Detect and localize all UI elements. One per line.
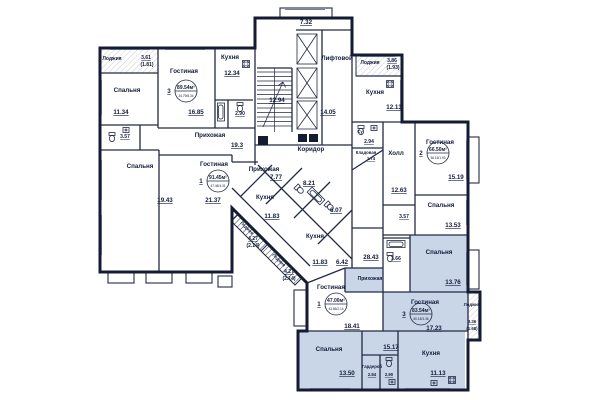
apartment-subarea: 36.15/1.93 <box>430 156 445 160</box>
area-label: 3.57 <box>399 214 409 220</box>
area-label: 12.13 <box>386 104 402 111</box>
room-label: Гостиная <box>317 284 345 291</box>
apartment-area: 89.54м² <box>177 85 195 91</box>
area-label: 7.77 <box>270 174 283 181</box>
apartment-subarea: 43.56/2.14 <box>328 307 343 311</box>
area-label: 4.27 <box>284 269 294 275</box>
area-label: 7.32 <box>300 19 313 26</box>
area-label: 12.34 <box>224 70 240 77</box>
room-label: (2.14) <box>246 243 259 249</box>
room-label: Прихожая <box>249 166 280 173</box>
room-label: Коридор <box>298 146 325 153</box>
room-label: Прихожая <box>195 132 226 139</box>
room-label: Спальня <box>127 163 154 170</box>
elevator-shafts <box>258 34 318 145</box>
area-label: 11.83 <box>264 213 280 220</box>
area-label: 2.84 <box>368 372 377 377</box>
room-label: Гостиная <box>170 68 198 75</box>
area-label: 12.94 <box>269 97 285 104</box>
room-label: Спальня <box>426 249 453 256</box>
floor-plan-canvas: Лоджия3.61(1.81)Спальня11.343.57Гостиная… <box>0 0 600 400</box>
area-label: 6.07 <box>330 207 343 214</box>
apartment-area: 66.50м² <box>429 147 447 153</box>
room-label: Прихожая <box>358 276 383 282</box>
apartment-stamp: 389.54м²34.79/8.34 <box>167 80 197 102</box>
area-label: 8.21 <box>303 180 316 187</box>
apartment-number: 2 <box>419 150 423 157</box>
area-label: 28.43 <box>363 254 379 261</box>
room-label: Лифтовой <box>321 55 353 62</box>
area-label: 3.61 <box>141 55 151 61</box>
floor-plan: Лоджия3.61(1.81)Спальня11.343.57Гостиная… <box>0 0 600 400</box>
room-label: Кухня <box>221 54 239 61</box>
room-label: Лоджия <box>464 302 481 307</box>
room-label: (1.68) <box>466 326 478 331</box>
area-label: 11.34 <box>113 109 129 116</box>
room-label: Гостиная <box>200 161 228 168</box>
apartment-number: 3 <box>402 311 406 318</box>
area-label: 19.43 <box>157 197 173 204</box>
area-label: 11.13 <box>430 370 446 377</box>
area-label: 11.83 <box>312 259 328 266</box>
stove-icon <box>387 81 394 88</box>
room-label: Кухня <box>306 233 324 240</box>
apartment-subarea: 34.79/8.34 <box>178 94 193 98</box>
tub-icon <box>387 241 405 248</box>
area-label: 18.41 <box>344 323 360 330</box>
area-label: 1.74 <box>367 156 376 161</box>
area-label: 3.66 <box>391 256 401 262</box>
apartment-area: 47.00м² <box>327 298 345 304</box>
area-label: 13.76 <box>445 279 461 286</box>
area-label: 3.57 <box>120 134 130 140</box>
apartment-subarea: 80.18/3.36 <box>413 317 428 321</box>
area-label: 3.86 <box>387 58 397 64</box>
area-label: 15.17 <box>383 344 399 351</box>
room-label: Гардероб <box>362 364 383 369</box>
area-label: 2.90 <box>385 372 394 377</box>
area-label: 17.23 <box>426 325 442 332</box>
room-label: Спальня <box>114 87 141 94</box>
area-label: 2.94 <box>364 139 374 145</box>
area-label: 13.53 <box>445 222 461 229</box>
tub-icon <box>218 103 225 121</box>
area-label: 4.27 <box>248 236 258 242</box>
apartment-number: 3 <box>167 88 171 95</box>
area-label: 16.85 <box>188 109 204 116</box>
area-label: 21.37 <box>205 197 221 204</box>
room-label: (1.93) <box>386 65 399 71</box>
area-label: 13.50 <box>339 370 355 377</box>
room-label: Холл <box>388 150 404 157</box>
room-label: Спальня <box>316 346 343 353</box>
apartment-area: 91.45м² <box>209 175 227 181</box>
sink-icon <box>371 126 377 131</box>
apartment-stamp: 147.00м²43.56/2.14 <box>317 293 347 315</box>
room-label: Кухня <box>366 89 384 96</box>
area-label: 6.42 <box>336 259 349 266</box>
area-label: 14.05 <box>320 109 336 116</box>
toilet-icon <box>109 133 115 142</box>
area-label: 2.90 <box>235 111 245 117</box>
stove-icon <box>243 61 250 68</box>
room-label: Лоджия <box>102 56 121 62</box>
area-label: 3.36 <box>468 319 477 324</box>
area-label: 12.63 <box>391 187 407 194</box>
room-label: (2.14) <box>282 276 295 282</box>
room-label: Спальня <box>428 202 455 209</box>
area-label: 15.19 <box>448 174 464 181</box>
apartment-stamp: 191.45м²47.46/4.31 <box>199 170 229 192</box>
room-label: Кладовая <box>356 150 377 155</box>
room-label: (1.81) <box>140 62 153 68</box>
apartment-area: 83.54м² <box>412 308 430 314</box>
room-label: Су <box>357 129 363 134</box>
apartment-number: 1 <box>317 301 321 308</box>
room-label: Кухня <box>422 350 440 357</box>
sink-icon <box>123 128 129 133</box>
apartment-subarea: 47.46/4.31 <box>210 184 225 188</box>
room-label: Лоджия <box>360 60 379 66</box>
area-label: 19.3 <box>231 142 244 149</box>
room-label: Кухня <box>256 194 274 201</box>
apartment-number: 1 <box>199 178 203 185</box>
